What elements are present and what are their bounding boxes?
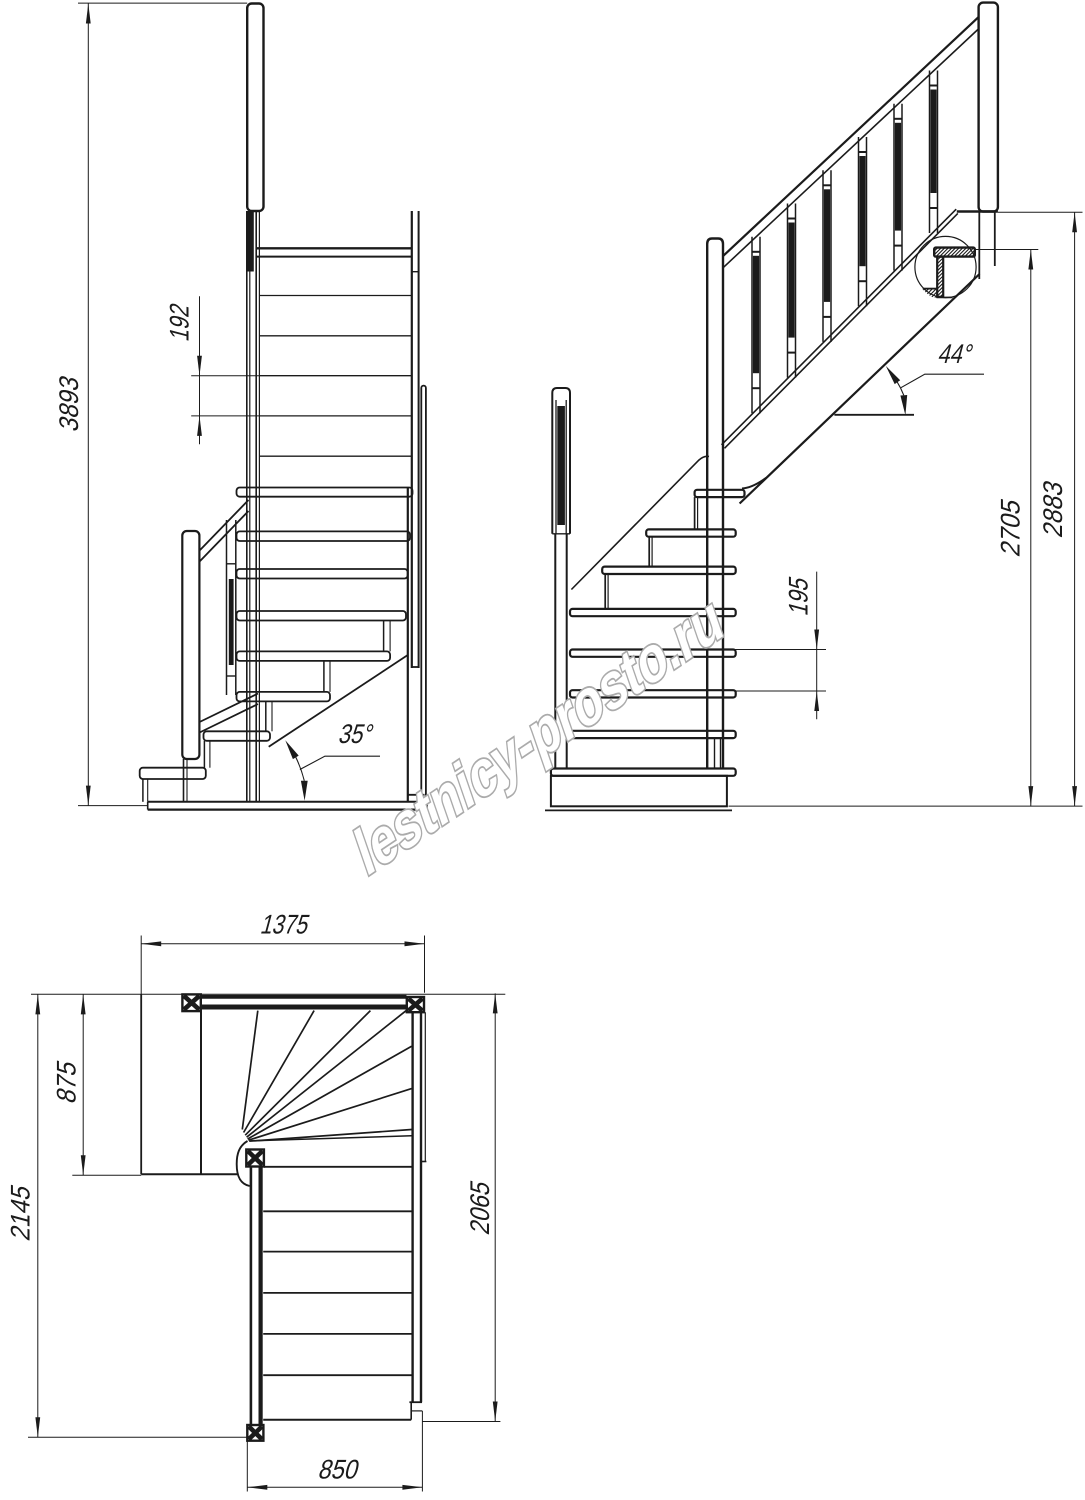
svg-text:2883: 2883 — [1037, 477, 1067, 540]
svg-text:850: 850 — [316, 1454, 363, 1484]
svg-text:2705: 2705 — [995, 495, 1025, 559]
svg-text:875: 875 — [51, 1057, 81, 1106]
svg-text:1375: 1375 — [258, 909, 313, 939]
svg-text:2145: 2145 — [5, 1181, 35, 1243]
svg-text:2065: 2065 — [464, 1177, 494, 1237]
svg-text:3893: 3893 — [53, 372, 83, 434]
